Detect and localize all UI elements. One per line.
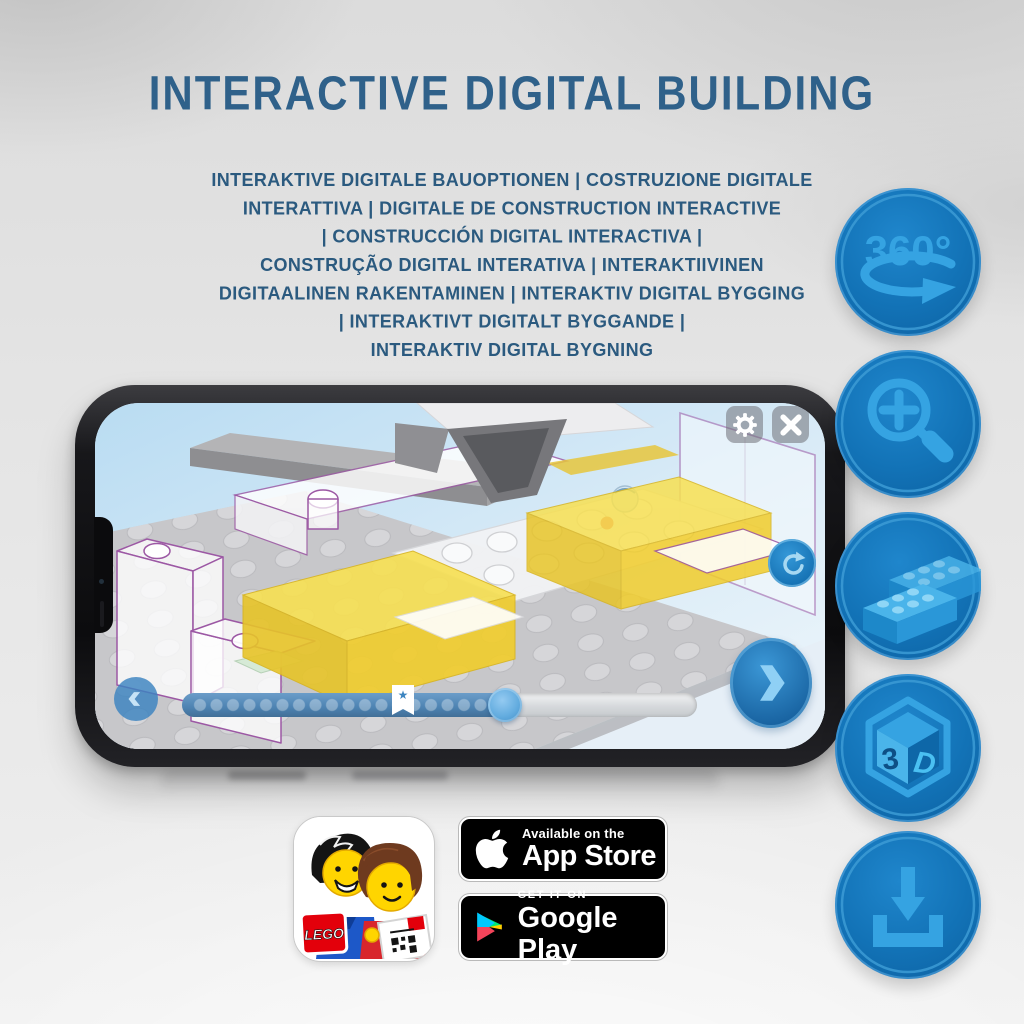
zoom-in-icon: [835, 350, 981, 498]
minifigures-illustration: LEGO: [294, 817, 432, 959]
feature-zoom-badge: [835, 350, 981, 498]
google-play-label: Google Play: [518, 902, 665, 966]
app-screen: ★: [95, 403, 825, 749]
gear-icon: [730, 410, 760, 440]
google-play-tagline: GET IT ON: [518, 888, 665, 902]
gear-button[interactable]: [726, 406, 763, 443]
next-step-button[interactable]: [730, 638, 812, 728]
app-store-badge[interactable]: Available on the App Store: [459, 817, 667, 881]
page-title: INTERACTIVE DIGITAL BUILDING: [0, 66, 1024, 121]
close-icon: [778, 412, 804, 438]
rotate-icon: [775, 546, 809, 580]
feature-bricks-badge: [835, 512, 981, 660]
phone-notch: [94, 517, 113, 633]
google-play-icon: [474, 907, 506, 947]
promo-image: INTERACTIVE DIGITAL BUILDING INTERAKTIVE…: [0, 0, 1024, 1024]
previous-step-button[interactable]: [114, 677, 158, 721]
apple-icon: [474, 827, 510, 871]
progress-fill: [182, 693, 508, 717]
build-progress-slider[interactable]: ★: [182, 693, 697, 717]
speaker-slit: [100, 601, 104, 627]
download-icon: [835, 831, 981, 979]
rotate-model-button[interactable]: [768, 539, 816, 587]
svg-text:360°: 360°: [865, 227, 952, 274]
front-camera: [99, 579, 104, 584]
app-store-label: App Store: [522, 841, 656, 872]
app-store-tagline: Available on the: [522, 826, 656, 841]
star-icon: ★: [398, 688, 409, 702]
google-play-badge[interactable]: GET IT ON Google Play: [459, 894, 667, 960]
close-button[interactable]: [772, 406, 809, 443]
chevron-right-icon: [745, 654, 797, 712]
progress-dots: [192, 693, 492, 717]
chevron-left-icon: [121, 684, 151, 714]
phone-mockup: ★: [75, 385, 845, 767]
lego-app-icon[interactable]: LEGO: [293, 816, 435, 962]
feature-360-badge: 360°: [835, 188, 981, 336]
svg-text:D: D: [912, 746, 938, 782]
lego-bricks-icon: [835, 512, 981, 660]
feature-download-badge: [835, 831, 981, 979]
lego-logo: LEGO: [304, 925, 345, 943]
phone-reflection: [228, 771, 306, 780]
3d-cube-icon: 3 D: [835, 674, 981, 822]
feature-3d-badge: 3 D: [835, 674, 981, 822]
slider-knob[interactable]: [488, 688, 522, 722]
360-degree-icon: 360°: [835, 188, 981, 336]
phone-reflection: [352, 771, 448, 780]
